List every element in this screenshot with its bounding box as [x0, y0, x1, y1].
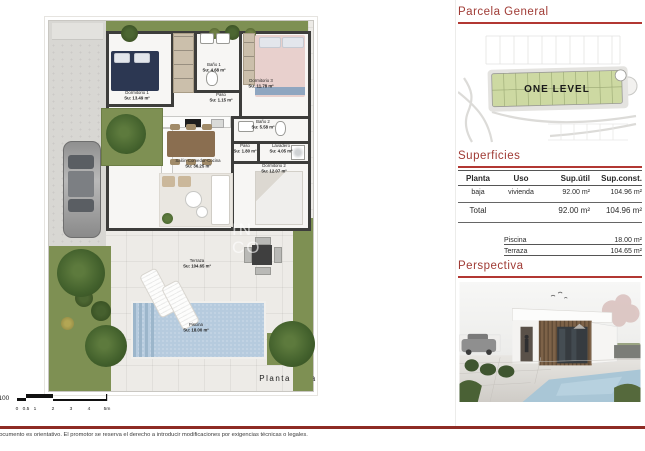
pillow — [134, 53, 150, 63]
armchair — [178, 176, 191, 187]
header-sup-util: Sup.útil — [544, 174, 590, 183]
room-label-bano-1: Baño 1 Su: 4.68 m² — [202, 63, 225, 74]
pergola — [614, 345, 640, 358]
glass-reflection — [571, 329, 576, 362]
scale-segment — [26, 394, 53, 398]
room-label-paso-1: Paso Su: 1.15 m² — [209, 93, 232, 104]
flower-bush — [61, 317, 74, 330]
bed-dormitorio-2 — [255, 171, 303, 225]
perspective-render — [458, 282, 642, 402]
table-total-row: Total 92.00 m² 104.96 m² — [458, 203, 642, 217]
room-label-bano-2: Baño 2 Su: 5.58 m² — [251, 120, 274, 131]
wardrobe — [243, 33, 255, 85]
pillow — [282, 37, 304, 48]
outdoor-chair — [255, 267, 271, 275]
plot-notch — [615, 70, 626, 81]
courtyard-garden — [101, 108, 163, 166]
disclaimer-text: documento es orientativo. El promotor se… — [0, 431, 601, 437]
car-windshield — [68, 199, 94, 212]
kitchen-sink — [211, 119, 224, 128]
cell-sup-const: 104.96 m² — [590, 189, 642, 196]
room-label-salon: Salón-Comedor-Cocina Su: 36.25 m² — [175, 159, 220, 170]
pool-steps — [133, 303, 155, 357]
section-divider — [455, 0, 456, 426]
wall — [239, 31, 242, 119]
person — [525, 335, 529, 352]
cell-planta: baja — [458, 189, 498, 196]
chair — [170, 124, 180, 130]
car-rear-window — [68, 155, 94, 169]
room-label-dormitorio-1: Dormitorio 1 Su: 13.49 m² — [124, 91, 149, 102]
header-uso: Uso — [498, 174, 544, 183]
one-level-label: ONE LEVEL — [524, 84, 590, 95]
heading-rule — [458, 276, 642, 278]
svg-text:3: 3 — [70, 406, 73, 412]
scale-tick-labels: 0 0.5 1 2 3 4 5m — [16, 406, 111, 412]
scale-end-tick — [106, 394, 107, 401]
pillow — [259, 37, 281, 48]
outdoor-chair — [274, 247, 282, 263]
extra-row-terraza: Terraza 104.65 m² — [504, 245, 642, 256]
heading-rule — [458, 22, 642, 24]
total-sup-util: 92.00 m² — [544, 206, 590, 215]
toilet — [275, 121, 286, 136]
extra-value: 104.65 m² — [610, 248, 642, 255]
parcela-map: ONE LEVEL — [458, 28, 642, 146]
room-label-terraza: Terraza Su: 104.65 m² — [183, 259, 211, 270]
car-top-view — [61, 141, 101, 236]
wall — [194, 31, 197, 93]
svg-text:5m: 5m — [104, 406, 111, 412]
table-row: baja vivienda 92.00 m² 104.96 m² — [458, 186, 642, 197]
foreground-plant — [614, 384, 640, 402]
room-label-piscina: Piscina Su: 18.00 m² — [183, 323, 208, 334]
perspectiva-heading: Perspectiva — [458, 260, 524, 272]
wardrobe — [173, 33, 194, 93]
watermark: IN CO — [232, 221, 262, 257]
wall-right — [592, 323, 617, 364]
bathroom-sink — [216, 33, 230, 44]
foreground-plant — [459, 380, 481, 402]
plant-pot — [162, 213, 173, 224]
washing-machine — [291, 145, 305, 160]
extra-label: Piscina — [504, 237, 527, 244]
superficies-heading: Superficies — [458, 150, 520, 162]
cell-sup-util: 92.00 m² — [544, 189, 590, 196]
palm-tree — [57, 249, 105, 297]
sofa — [211, 175, 230, 225]
wheel — [466, 349, 472, 355]
bush — [121, 25, 138, 42]
coffee-table — [196, 206, 208, 218]
courtyard-tree — [106, 114, 146, 154]
wheel — [486, 349, 492, 355]
wall — [106, 104, 171, 107]
dining-table — [167, 131, 215, 157]
room-label-dormitorio-2: Dormitorio 2 Su: 12.07 m² — [261, 164, 286, 175]
glass-reflection — [559, 329, 565, 362]
room-label-lavadero: Lavadero Su: 4.05 m² — [269, 144, 292, 155]
heading-rule — [458, 166, 642, 168]
header-sup-const: Sup.const. — [590, 174, 642, 183]
extra-row-piscina: Piscina 18.00 m² — [504, 234, 642, 245]
wall — [231, 116, 311, 119]
svg-text:0: 0 — [16, 406, 19, 412]
svg-text:0.5: 0.5 — [23, 406, 30, 412]
scale-segment — [53, 399, 107, 401]
scale-bar: 1/100 0 0.5 1 2 3 4 5m — [0, 390, 130, 416]
cell-uso: vivienda — [498, 189, 544, 196]
table-header-row: Planta Uso Sup.útil Sup.const. — [458, 170, 642, 186]
chair — [186, 124, 196, 130]
table-rule — [458, 222, 642, 223]
scale-segment — [17, 398, 26, 401]
shrub-large — [85, 325, 127, 367]
pillow — [114, 53, 130, 63]
svg-text:1: 1 — [34, 406, 37, 412]
svg-text:4: 4 — [88, 406, 91, 412]
plan-caption: Planta Baja — [250, 374, 326, 383]
site-plot: IN CO Dormitorio 1 Su: 13.49 m² Baño 1 S… — [48, 20, 314, 392]
car-roof — [68, 171, 94, 197]
parcela-heading: Parcela General — [458, 6, 549, 18]
room-label-dormitorio-3: Dormitorio 3 Su: 11.78 m² — [248, 79, 273, 90]
plan-sheet: IN CO Dormitorio 1 Su: 13.49 m² Baño 1 S… — [0, 0, 645, 451]
bathroom-sink — [200, 33, 214, 44]
room-label-paso-2: Paso Su: 1.80 m² — [233, 144, 256, 155]
extra-surfaces: Piscina 18.00 m² Terraza 104.65 m² — [504, 234, 642, 256]
info-panel: Parcela General ONE LEVEL — [458, 4, 642, 404]
header-planta: Planta — [458, 174, 498, 183]
svg-text:2: 2 — [52, 406, 55, 412]
palm-tree — [269, 321, 315, 367]
armchair — [162, 176, 175, 187]
extra-label: Terraza — [504, 248, 527, 255]
footer-accent-band — [0, 426, 645, 429]
upper-plots — [486, 36, 620, 64]
total-label: Total — [458, 206, 498, 215]
wall — [257, 141, 260, 164]
entry-walkway — [52, 23, 103, 40]
superficies-table: Planta Uso Sup.útil Sup.const. baja vivi… — [458, 170, 642, 223]
chair — [202, 124, 212, 130]
total-sup-const: 104.96 m² — [590, 206, 642, 215]
bush — [91, 301, 111, 321]
scale-ratio: 1/100 — [0, 395, 10, 402]
extra-value: 18.00 m² — [614, 237, 642, 244]
